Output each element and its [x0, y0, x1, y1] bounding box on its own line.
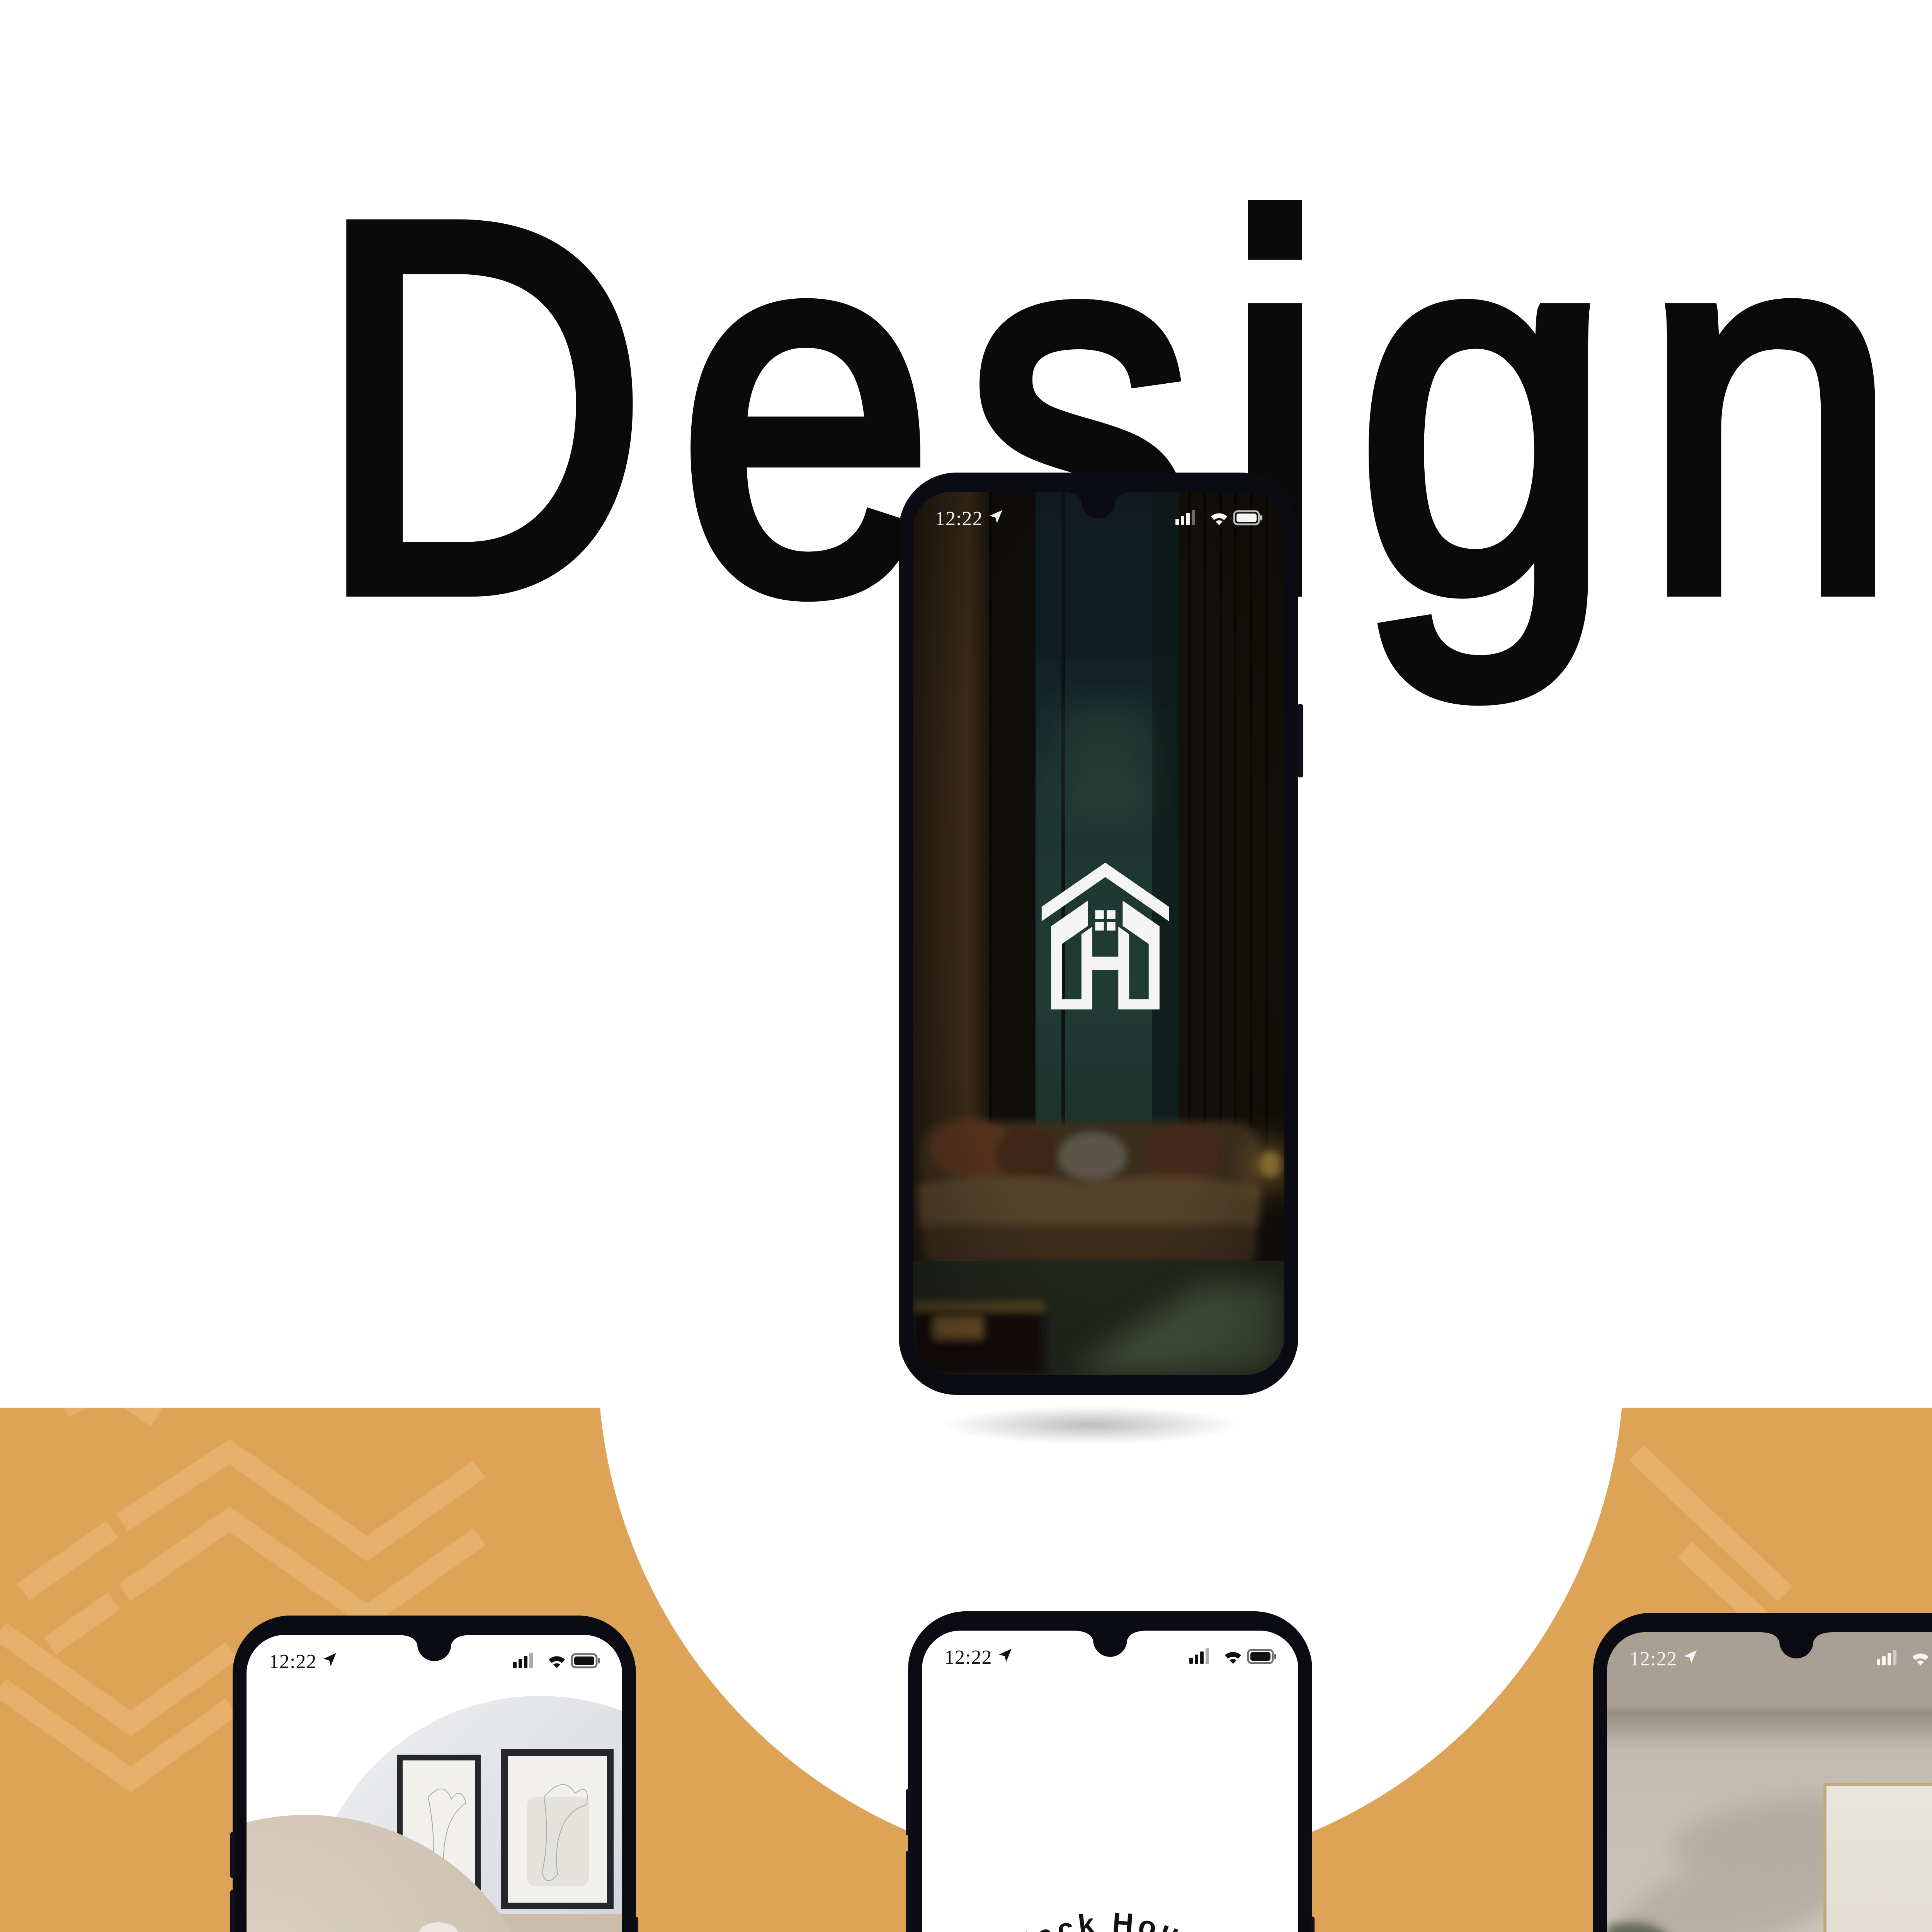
- svg-text:Black House: Black House: [995, 1906, 1228, 1932]
